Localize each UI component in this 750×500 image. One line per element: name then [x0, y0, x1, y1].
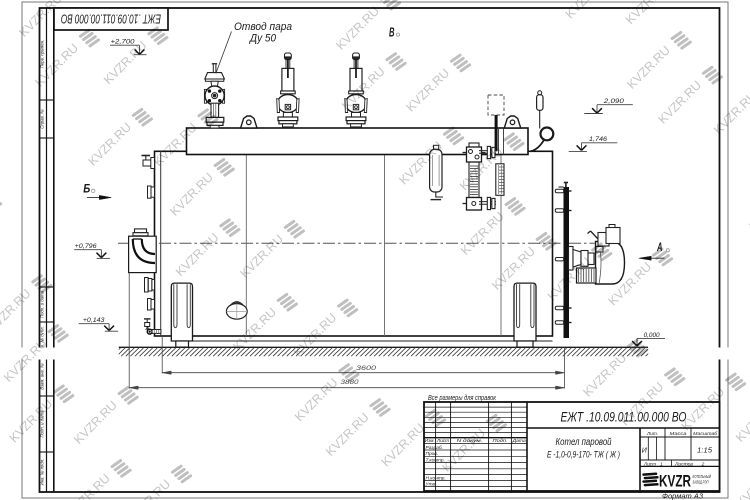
svg-text:Листов: Листов	[674, 461, 694, 467]
svg-text:КОТЕЛЬНЫЙ: КОТЕЛЬНЫЙ	[693, 474, 712, 479]
svg-text:Отвод пара: Отвод пара	[234, 21, 292, 33]
svg-text:Все размеры для справок: Все размеры для справок	[428, 394, 497, 402]
svg-text:Е -1,0-0,9-170- ТЖ ( Ж ): Е -1,0-0,9-170- ТЖ ( Ж )	[547, 450, 620, 460]
svg-text:Пров.: Пров.	[426, 451, 439, 457]
svg-text:2: 2	[701, 461, 705, 467]
svg-text:+0,796: +0,796	[75, 243, 97, 250]
svg-text:Лист: Лист	[643, 461, 656, 467]
svg-text:KVZR: KVZR	[659, 472, 691, 490]
svg-text:0,000: 0,000	[644, 332, 660, 339]
svg-text:1:15: 1:15	[697, 448, 712, 455]
svg-text:Перв. примен.: Перв. примен.	[40, 40, 45, 69]
svg-text:2,090: 2,090	[603, 98, 625, 105]
svg-text:Лист: Лист	[436, 438, 449, 443]
svg-text:Н.контр.: Н.контр.	[426, 476, 446, 482]
svg-text:Масса: Масса	[670, 431, 687, 437]
svg-text:Подп. и дата: Подп. и дата	[40, 290, 45, 318]
svg-text:+2,700: +2,700	[111, 39, 135, 46]
svg-text:Б: Б	[83, 182, 90, 196]
svg-text:1,746: 1,746	[589, 136, 607, 143]
svg-text:+0,143: +0,143	[83, 317, 105, 324]
svg-text:ЗАВОД РЭП: ЗАВОД РЭП	[693, 480, 710, 485]
svg-text:Масштаб: Масштаб	[693, 431, 717, 437]
svg-text:В: В	[389, 25, 395, 40]
svg-text:Дата: Дата	[512, 438, 527, 443]
svg-text:Утв.: Утв.	[426, 482, 437, 488]
svg-text:Разраб.: Разраб.	[426, 445, 443, 451]
svg-text:ЕЖТ .10.09.011.00.000 ВО: ЕЖТ .10.09.011.00.000 ВО	[61, 12, 161, 26]
svg-text:Подп.: Подп.	[493, 438, 508, 443]
svg-text:Лит.: Лит.	[646, 431, 658, 437]
svg-text:Справ. №: Справ. №	[40, 109, 45, 129]
svg-text:3600: 3600	[356, 366, 377, 372]
svg-text:Формат А3: Формат А3	[662, 494, 703, 500]
svg-text:Ду 50: Ду 50	[248, 33, 277, 45]
svg-text:Котел паровой: Котел паровой	[556, 437, 612, 448]
svg-text:Инв. № подл.: Инв. № подл.	[40, 459, 45, 486]
svg-text:1: 1	[660, 461, 663, 467]
svg-text:Взам. инв. №: Взам. инв. №	[40, 363, 45, 390]
svg-text:Изм.: Изм.	[425, 438, 435, 443]
